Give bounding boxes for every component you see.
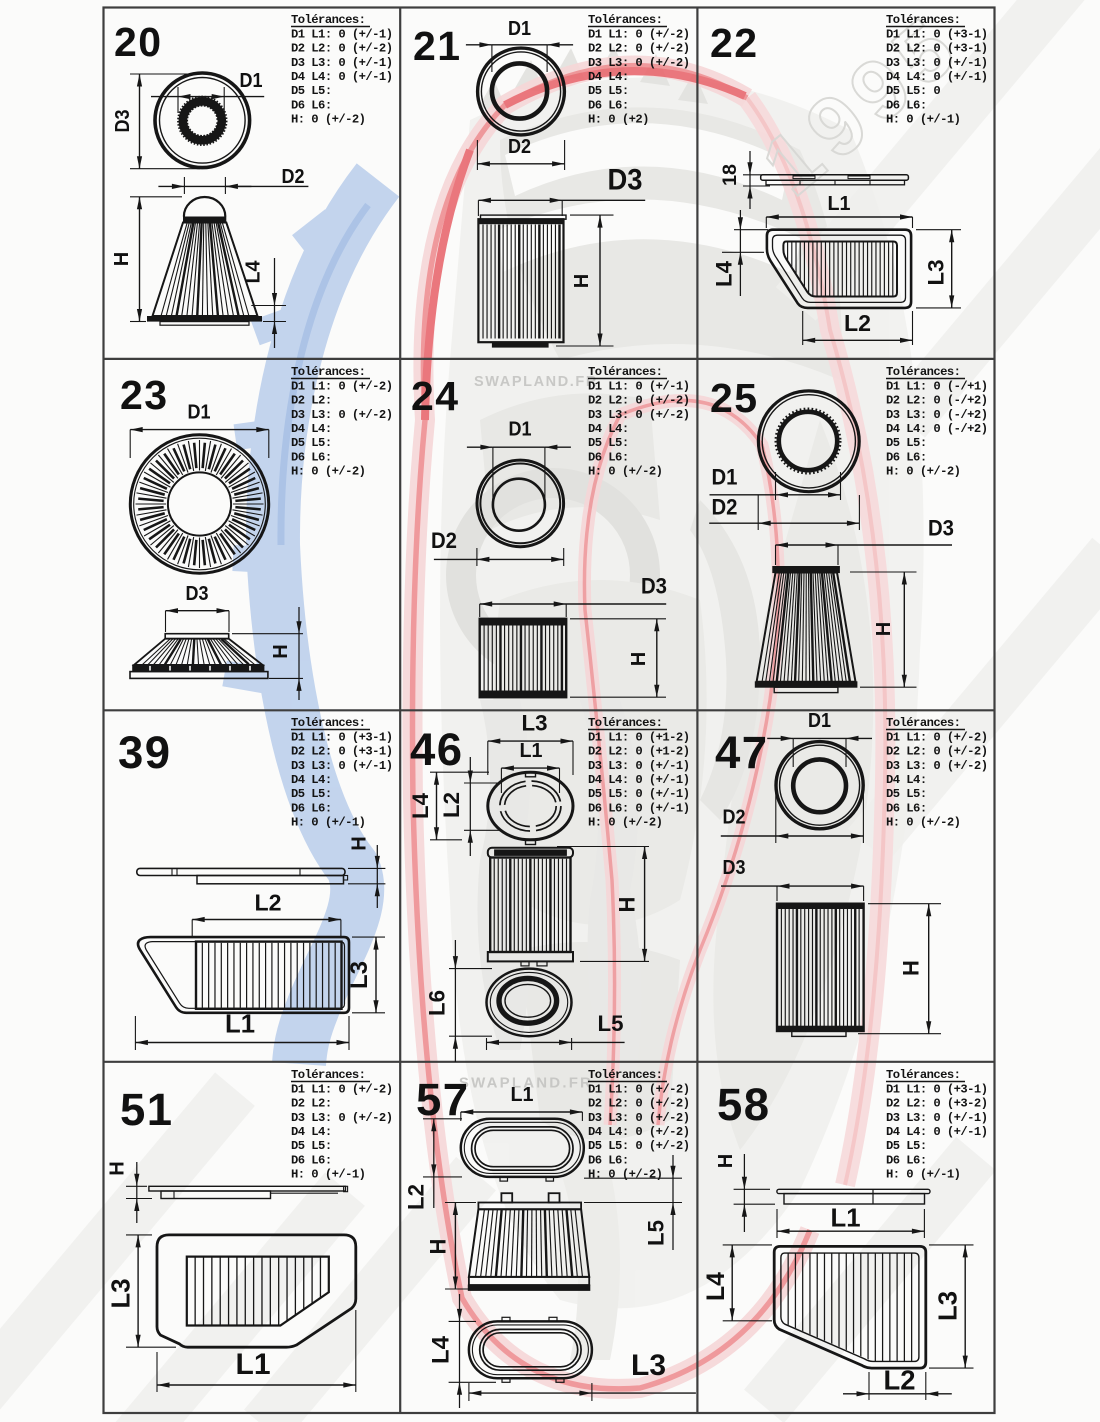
svg-text:H: 0 (+/-2): H: 0 (+/-2) <box>291 112 365 126</box>
svg-text:D4 L4:: D4 L4: <box>291 773 332 787</box>
svg-text:D3: D3 <box>928 516 954 541</box>
svg-text:D3: D3 <box>112 110 134 133</box>
svg-text:D6 L6:: D6 L6: <box>588 450 629 464</box>
svg-text:H: 0 (+/-2): H: 0 (+/-2) <box>588 1167 662 1181</box>
svg-text:D5 L5:: D5 L5: <box>291 84 332 98</box>
svg-text:D2 L2:: D2 L2: <box>291 394 332 408</box>
svg-text:L2: L2 <box>255 890 282 916</box>
svg-text:H: 0 (+/-2): H: 0 (+/-2) <box>886 464 960 478</box>
svg-text:D4 L4: 0 (+/-2): D4 L4: 0 (+/-2) <box>588 1125 689 1139</box>
svg-text:46: 46 <box>410 724 464 775</box>
svg-text:D5 L5:: D5 L5: <box>886 1139 927 1153</box>
svg-text:H: 0 (+/-2): H: 0 (+/-2) <box>588 815 662 829</box>
svg-text:D1: D1 <box>188 402 211 424</box>
svg-text:D1: D1 <box>712 465 738 490</box>
svg-text:D2: D2 <box>282 166 305 188</box>
svg-text:18: 18 <box>720 164 741 186</box>
svg-text:D1 L1: 0 (+/-2): D1 L1: 0 (+/-2) <box>886 731 987 745</box>
svg-text:D6 L6: 0 (+/-1): D6 L6: 0 (+/-1) <box>588 801 689 815</box>
svg-text:24: 24 <box>411 373 460 419</box>
svg-text:D5 L5: 0: D5 L5: 0 <box>886 84 940 98</box>
svg-text:D2 L2: 0 (+/-2): D2 L2: 0 (+/-2) <box>291 42 392 56</box>
svg-text:Tolérances:: Tolérances: <box>291 365 365 379</box>
svg-text:Tolérances:: Tolérances: <box>886 365 960 379</box>
svg-text:D3 L3: 0 (+/-2): D3 L3: 0 (+/-2) <box>886 759 987 773</box>
svg-text:H: H <box>270 644 292 658</box>
svg-text:D3 L3: 0 (-/+2): D3 L3: 0 (-/+2) <box>886 408 987 422</box>
svg-text:L3: L3 <box>522 711 548 736</box>
svg-text:H: H <box>628 652 650 666</box>
svg-text:D5 L5:: D5 L5: <box>886 787 927 801</box>
svg-text:H: H <box>615 897 640 913</box>
svg-text:H: 0 (+/-2): H: 0 (+/-2) <box>291 464 365 478</box>
svg-text:D6 L6:: D6 L6: <box>588 98 629 112</box>
svg-text:D6 L6:: D6 L6: <box>886 450 927 464</box>
svg-text:L3: L3 <box>933 1291 963 1321</box>
svg-text:D5 L5:: D5 L5: <box>291 436 332 450</box>
svg-text:D3 L3: 0 (+/-2): D3 L3: 0 (+/-2) <box>588 1111 689 1125</box>
svg-text:D3 L3: 0 (+/-1): D3 L3: 0 (+/-1) <box>588 759 689 773</box>
svg-text:D2: D2 <box>431 528 457 553</box>
svg-text:D3 L3: 0 (+/-2): D3 L3: 0 (+/-2) <box>291 408 392 422</box>
svg-text:D5 L5:: D5 L5: <box>588 84 629 98</box>
svg-text:D1 L1: 0 (+3-1): D1 L1: 0 (+3-1) <box>886 1083 987 1097</box>
svg-text:H: H <box>571 274 593 288</box>
svg-text:39: 39 <box>118 727 172 778</box>
svg-text:L1: L1 <box>831 1203 861 1233</box>
svg-text:H: H <box>349 836 371 850</box>
svg-text:H: 0 (+/-2): H: 0 (+/-2) <box>588 464 662 478</box>
svg-text:D4 L4:: D4 L4: <box>588 422 629 436</box>
svg-text:D4 L4: 0 (+/-1): D4 L4: 0 (+/-1) <box>291 70 392 84</box>
svg-text:D5 L5:: D5 L5: <box>588 436 629 450</box>
svg-text:D2: D2 <box>723 807 746 829</box>
svg-text:D2: D2 <box>508 136 531 158</box>
svg-text:Tolérances:: Tolérances: <box>291 716 365 730</box>
svg-text:L4: L4 <box>428 1335 455 1364</box>
svg-text:L3: L3 <box>346 961 373 989</box>
svg-text:D1 L1: 0 (+/-1): D1 L1: 0 (+/-1) <box>588 380 689 394</box>
svg-text:23: 23 <box>120 372 169 418</box>
svg-text:D4 L4:: D4 L4: <box>291 1125 332 1139</box>
svg-text:L4: L4 <box>408 792 433 819</box>
svg-text:D2 L2:: D2 L2: <box>291 1097 332 1111</box>
svg-text:D6 L6:: D6 L6: <box>886 1153 927 1167</box>
svg-text:D5 L5:: D5 L5: <box>291 787 332 801</box>
svg-text:L3: L3 <box>106 1279 136 1309</box>
svg-text:L4: L4 <box>243 260 265 284</box>
svg-text:D1 L1: 0 (-/+1): D1 L1: 0 (-/+1) <box>886 380 987 394</box>
svg-text:L3: L3 <box>631 1349 666 1382</box>
svg-text:D2 L2: 0 (+1-2): D2 L2: 0 (+1-2) <box>588 745 689 759</box>
svg-text:Tolérances:: Tolérances: <box>886 13 960 27</box>
svg-text:D6 L6:: D6 L6: <box>588 1153 629 1167</box>
svg-text:L2: L2 <box>884 1365 916 1396</box>
svg-text:Tolérances:: Tolérances: <box>291 1068 365 1082</box>
svg-text:H: 0 (+/-1): H: 0 (+/-1) <box>291 815 365 829</box>
svg-text:D2 L2: 0 (+3-1): D2 L2: 0 (+3-1) <box>291 745 392 759</box>
svg-text:20: 20 <box>114 19 163 65</box>
svg-text:D1 L1: 0 (+/-2): D1 L1: 0 (+/-2) <box>588 1083 689 1097</box>
svg-text:D1: D1 <box>508 18 531 40</box>
svg-text:D6 L6:: D6 L6: <box>291 1153 332 1167</box>
svg-text:D1 L1: 0 (+/-2): D1 L1: 0 (+/-2) <box>291 1083 392 1097</box>
svg-text:L2: L2 <box>439 792 464 818</box>
svg-text:H: H <box>107 1161 129 1175</box>
svg-text:21: 21 <box>413 23 462 69</box>
svg-text:D3 L3: 0 (+/-1): D3 L3: 0 (+/-1) <box>291 759 392 773</box>
svg-text:58: 58 <box>717 1079 771 1130</box>
svg-text:D5 L5:: D5 L5: <box>886 436 927 450</box>
svg-text:H: 0 (+2): H: 0 (+2) <box>588 112 649 126</box>
svg-text:L4: L4 <box>702 1272 730 1301</box>
svg-text:L1: L1 <box>236 1348 271 1381</box>
svg-text:D2: D2 <box>712 495 738 520</box>
svg-text:D4 L4: 0 (+/-1): D4 L4: 0 (+/-1) <box>886 70 987 84</box>
svg-text:D2 L2: 0 (+/-2): D2 L2: 0 (+/-2) <box>588 1097 689 1111</box>
svg-text:H: 0 (+/-1): H: 0 (+/-1) <box>291 1167 365 1181</box>
svg-text:Tolérances:: Tolérances: <box>886 716 960 730</box>
svg-text:D6 L6:: D6 L6: <box>886 801 927 815</box>
svg-text:H: H <box>426 1239 451 1255</box>
svg-text:D4 L4: 0 (+/-1): D4 L4: 0 (+/-1) <box>588 773 689 787</box>
svg-text:H: H <box>715 1154 737 1168</box>
svg-text:D2 L2: 0 (-/+2): D2 L2: 0 (-/+2) <box>886 394 987 408</box>
svg-text:H: H <box>111 252 133 266</box>
svg-text:47: 47 <box>715 727 769 778</box>
svg-text:Tolérances:: Tolérances: <box>588 365 662 379</box>
svg-text:D5 L5: 0 (+/-2): D5 L5: 0 (+/-2) <box>588 1139 689 1153</box>
svg-text:Tolérances:: Tolérances: <box>886 1068 960 1082</box>
svg-text:D3 L3: 0 (+/-2): D3 L3: 0 (+/-2) <box>588 408 689 422</box>
svg-text:D4 L4:: D4 L4: <box>886 773 927 787</box>
svg-text:Tolérances:: Tolérances: <box>588 716 662 730</box>
svg-text:D3: D3 <box>608 164 643 197</box>
svg-text:D1: D1 <box>240 70 263 92</box>
svg-text:Tolérances:: Tolérances: <box>588 13 662 27</box>
svg-text:D5 L5: 0 (+/-1): D5 L5: 0 (+/-1) <box>588 787 689 801</box>
svg-text:Tolérances:: Tolérances: <box>588 1068 662 1082</box>
svg-text:D6 L6:: D6 L6: <box>886 98 927 112</box>
svg-text:D3 L3: 0 (+/-2): D3 L3: 0 (+/-2) <box>291 1111 392 1125</box>
svg-text:51: 51 <box>120 1084 174 1135</box>
svg-text:L1: L1 <box>828 193 851 215</box>
svg-text:25: 25 <box>710 375 759 421</box>
svg-text:D3: D3 <box>641 574 667 599</box>
svg-text:57: 57 <box>416 1074 470 1125</box>
svg-text:L3: L3 <box>924 260 949 286</box>
svg-text:D2 L2: 0 (+/-2): D2 L2: 0 (+/-2) <box>588 394 689 408</box>
svg-text:D6 L6:: D6 L6: <box>291 801 332 815</box>
svg-text:L5: L5 <box>644 1220 669 1246</box>
svg-text:L5: L5 <box>598 1011 624 1036</box>
svg-text:H: H <box>873 622 895 636</box>
svg-text:D3 L3: 0 (+/-2): D3 L3: 0 (+/-2) <box>588 56 689 70</box>
svg-text:D1 L1: 0 (+/-1): D1 L1: 0 (+/-1) <box>291 28 392 42</box>
svg-text:D3: D3 <box>186 583 209 605</box>
svg-text:D3: D3 <box>723 857 746 879</box>
svg-text:D4 L4:: D4 L4: <box>291 422 332 436</box>
svg-text:22: 22 <box>710 20 759 66</box>
svg-text:D6 L6:: D6 L6: <box>291 98 332 112</box>
svg-text:L2: L2 <box>844 310 871 336</box>
svg-text:D2 L2: 0 (+/-2): D2 L2: 0 (+/-2) <box>588 42 689 56</box>
svg-text:L1: L1 <box>511 1084 534 1106</box>
svg-text:L1: L1 <box>520 740 543 762</box>
svg-text:D6 L6:: D6 L6: <box>291 450 332 464</box>
svg-text:SWAPLAND.FR: SWAPLAND.FR <box>474 374 598 390</box>
svg-text:D4 L4: 0 (+/-1): D4 L4: 0 (+/-1) <box>886 1125 987 1139</box>
svg-text:D1 L1: 0 (+/-2): D1 L1: 0 (+/-2) <box>291 380 392 394</box>
svg-text:D4 L4:: D4 L4: <box>588 70 629 84</box>
svg-text:D3 L3: 0 (+/-1): D3 L3: 0 (+/-1) <box>886 1111 987 1125</box>
svg-text:D1 L1: 0 (+/-2): D1 L1: 0 (+/-2) <box>588 28 689 42</box>
svg-text:D2 L2: 0 (+3-2): D2 L2: 0 (+3-2) <box>886 1097 987 1111</box>
svg-text:H: H <box>899 960 924 976</box>
svg-text:Tolérances:: Tolérances: <box>291 13 365 27</box>
svg-text:D1: D1 <box>808 710 831 732</box>
svg-text:D2 L2: 0 (+3-1): D2 L2: 0 (+3-1) <box>886 42 987 56</box>
svg-text:D1 L1: 0 (+1-2): D1 L1: 0 (+1-2) <box>588 731 689 745</box>
svg-text:D4 L4: 0 (-/+2): D4 L4: 0 (-/+2) <box>886 422 987 436</box>
svg-text:D1 L1: 0 (+3-1): D1 L1: 0 (+3-1) <box>291 731 392 745</box>
svg-text:D1 L1: 0 (+3-1): D1 L1: 0 (+3-1) <box>886 28 987 42</box>
svg-text:H: 0 (+/-2): H: 0 (+/-2) <box>886 815 960 829</box>
svg-text:D1: D1 <box>509 419 532 441</box>
svg-text:H: 0 (+/-1): H: 0 (+/-1) <box>886 1167 960 1181</box>
svg-text:H: 0 (+/-1): H: 0 (+/-1) <box>886 112 960 126</box>
svg-text:D3 L3: 0 (+/-1): D3 L3: 0 (+/-1) <box>291 56 392 70</box>
svg-text:D3 L3: 0 (+/-1): D3 L3: 0 (+/-1) <box>886 56 987 70</box>
svg-text:D2 L2: 0 (+/-2): D2 L2: 0 (+/-2) <box>886 745 987 759</box>
svg-text:D5 L5:: D5 L5: <box>291 1139 332 1153</box>
svg-text:L1: L1 <box>225 1009 255 1039</box>
svg-text:L2: L2 <box>404 1184 429 1210</box>
svg-text:L4: L4 <box>712 260 737 287</box>
svg-text:L6: L6 <box>425 990 450 1016</box>
